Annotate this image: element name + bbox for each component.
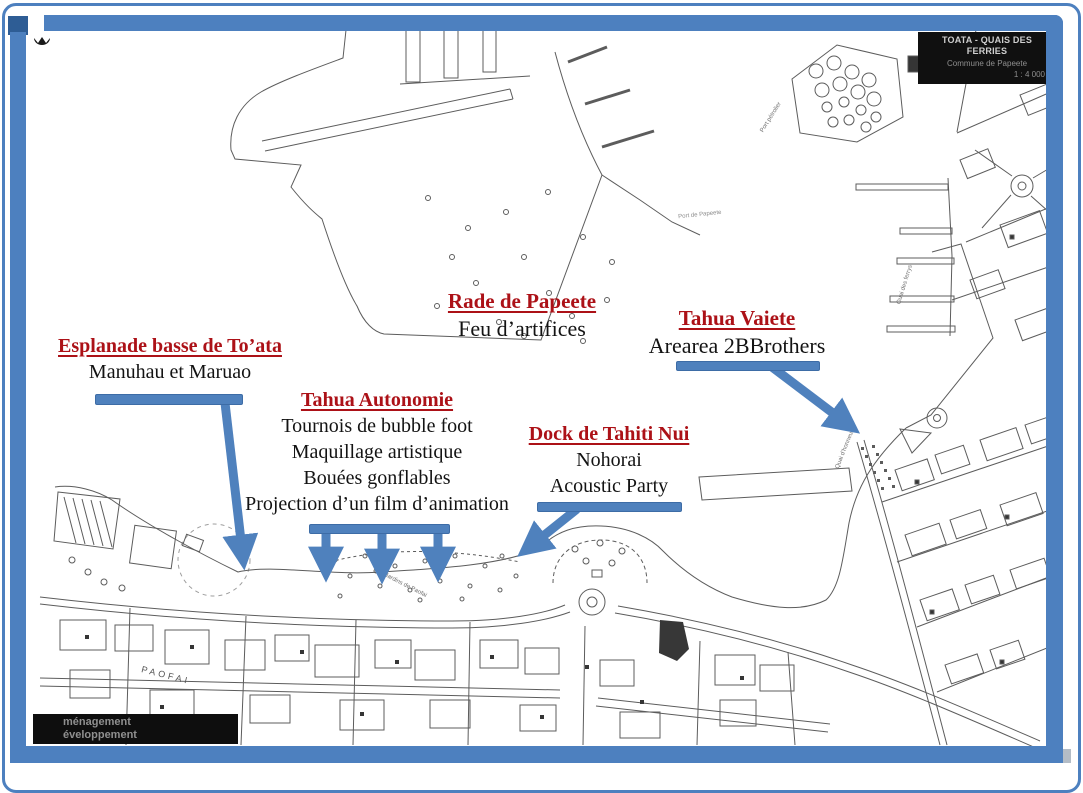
frame-shadow (1063, 749, 1071, 763)
callout-pointer-bar-esplanade (95, 394, 243, 405)
callout-dock-title: Dock de Tahiti Nui (529, 421, 690, 447)
frame-right-bar (1046, 15, 1063, 763)
frame-bottom-bar (10, 746, 1063, 763)
callout-pointer-bar-autonomie (309, 524, 450, 534)
callout-autonomie-line3: Bouées gonflables (245, 465, 509, 491)
callout-autonomie-line2: Maquillage artistique (245, 439, 509, 465)
callout-autonomie: Tahua Autonomie Tournois de bubble foot … (245, 387, 509, 517)
callout-dock: Dock de Tahiti Nui Nohorai Acoustic Part… (529, 421, 690, 499)
callout-rade-title: Rade de Papeete (448, 288, 596, 315)
map-logo-mark (32, 34, 52, 50)
callout-autonomie-title: Tahua Autonomie (245, 387, 509, 413)
callout-arrow-dock (527, 509, 577, 549)
callout-esplanade-title: Esplanade basse de To’ata (58, 333, 282, 359)
map-title-block: TOATA - QUAIS DES FERRIES Commune de Pap… (918, 32, 1056, 84)
callout-autonomie-line1: Tournois de bubble foot (245, 413, 509, 439)
credit-line1: ménagement (63, 716, 238, 729)
frame-left-bar (10, 32, 26, 746)
callout-rade-line: Feu d’artifices (448, 315, 596, 342)
callout-rade: Rade de Papeete Feu d’artifices (448, 288, 596, 342)
callout-vaiete: Tahua Vaiete Arearea 2BBrothers (649, 305, 826, 359)
map-title-scale: 1 : 4 000 (923, 69, 1051, 80)
frame-top-bar (44, 15, 1063, 31)
callout-pointer-bar-vaiete (676, 361, 820, 371)
callout-esplanade-line: Manuhau et Maruao (58, 359, 282, 385)
callout-vaiete-line: Arearea 2BBrothers (649, 332, 826, 359)
credit-line2: éveloppement (63, 729, 238, 742)
callout-autonomie-line4: Projection d’un film d’animation (245, 491, 509, 517)
callout-arrow-vaiete (772, 367, 850, 426)
map-title-line1: TOATA - QUAIS DES FERRIES (923, 35, 1051, 57)
callout-vaiete-title: Tahua Vaiete (649, 305, 826, 332)
callout-arrow-esplanade (225, 403, 243, 558)
map-poster-page: { "map": { "title_block": { "line1": "TO… (0, 0, 1083, 793)
map-credit-box: ménagement éveloppement (33, 714, 238, 744)
callout-dock-line1: Nohorai (529, 447, 690, 473)
callout-dock-line2: Acoustic Party (529, 473, 690, 499)
map-title-line2: Commune de Papeete (923, 58, 1051, 69)
callout-pointer-bar-dock (537, 502, 682, 512)
callout-esplanade: Esplanade basse de To’ata Manuhau et Mar… (58, 333, 282, 385)
